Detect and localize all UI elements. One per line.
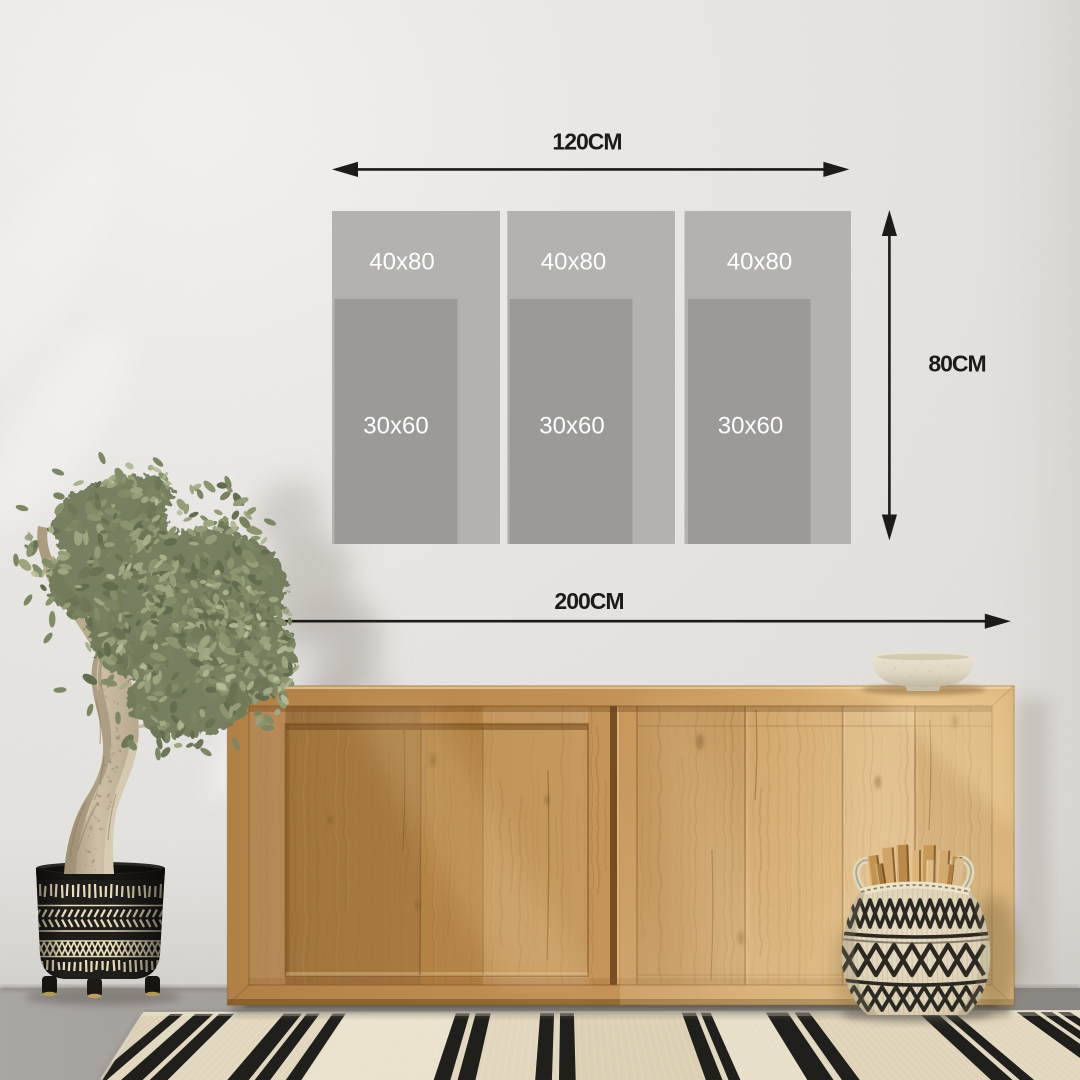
svg-text:30x60: 30x60 bbox=[539, 413, 604, 440]
svg-text:40x80: 40x80 bbox=[369, 249, 434, 276]
svg-text:30x60: 30x60 bbox=[718, 413, 783, 440]
svg-text:200CM: 200CM bbox=[554, 588, 623, 614]
svg-text:40x80: 40x80 bbox=[727, 249, 792, 276]
svg-text:80CM: 80CM bbox=[928, 350, 985, 376]
svg-text:120CM: 120CM bbox=[552, 128, 621, 154]
svg-text:40x80: 40x80 bbox=[541, 249, 606, 276]
svg-text:30x60: 30x60 bbox=[363, 413, 428, 440]
